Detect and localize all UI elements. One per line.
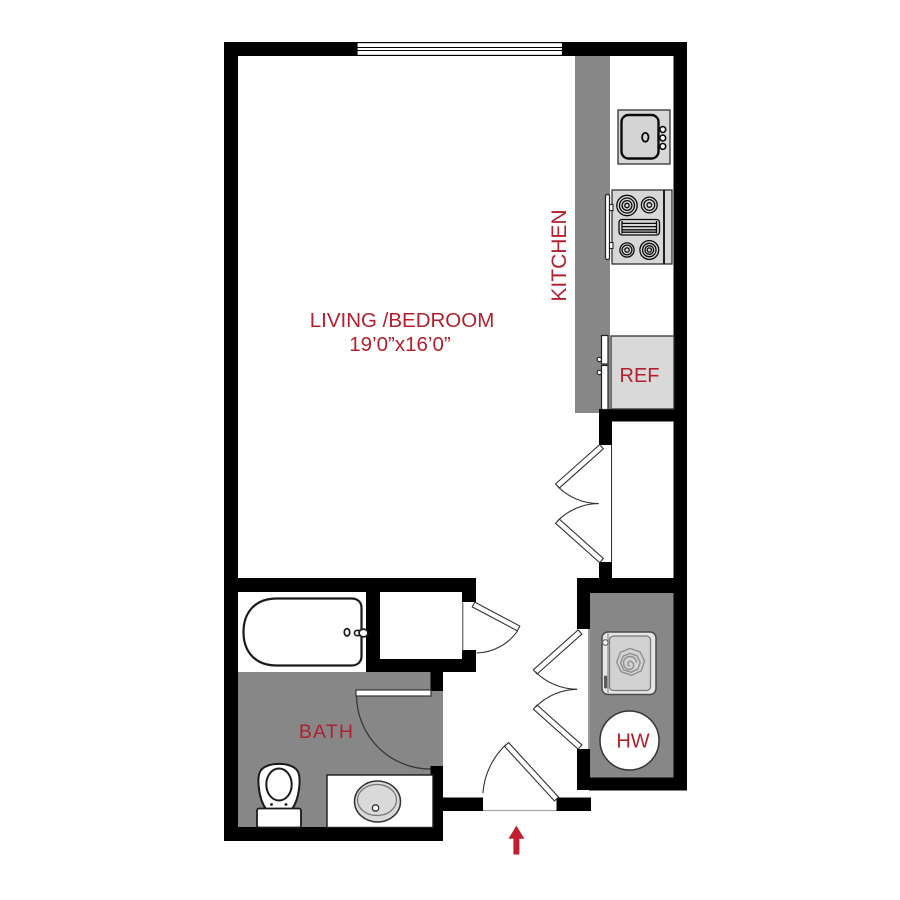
- svg-text:HW: HW: [616, 731, 649, 753]
- svg-text:LIVING /BEDROOM: LIVING /BEDROOM: [310, 309, 495, 332]
- svg-text:BATH: BATH: [299, 721, 354, 743]
- svg-text:REF: REF: [620, 365, 660, 387]
- svg-text:KITCHEN: KITCHEN: [548, 209, 571, 301]
- svg-text:19’0”x16’0”: 19’0”x16’0”: [349, 333, 451, 356]
